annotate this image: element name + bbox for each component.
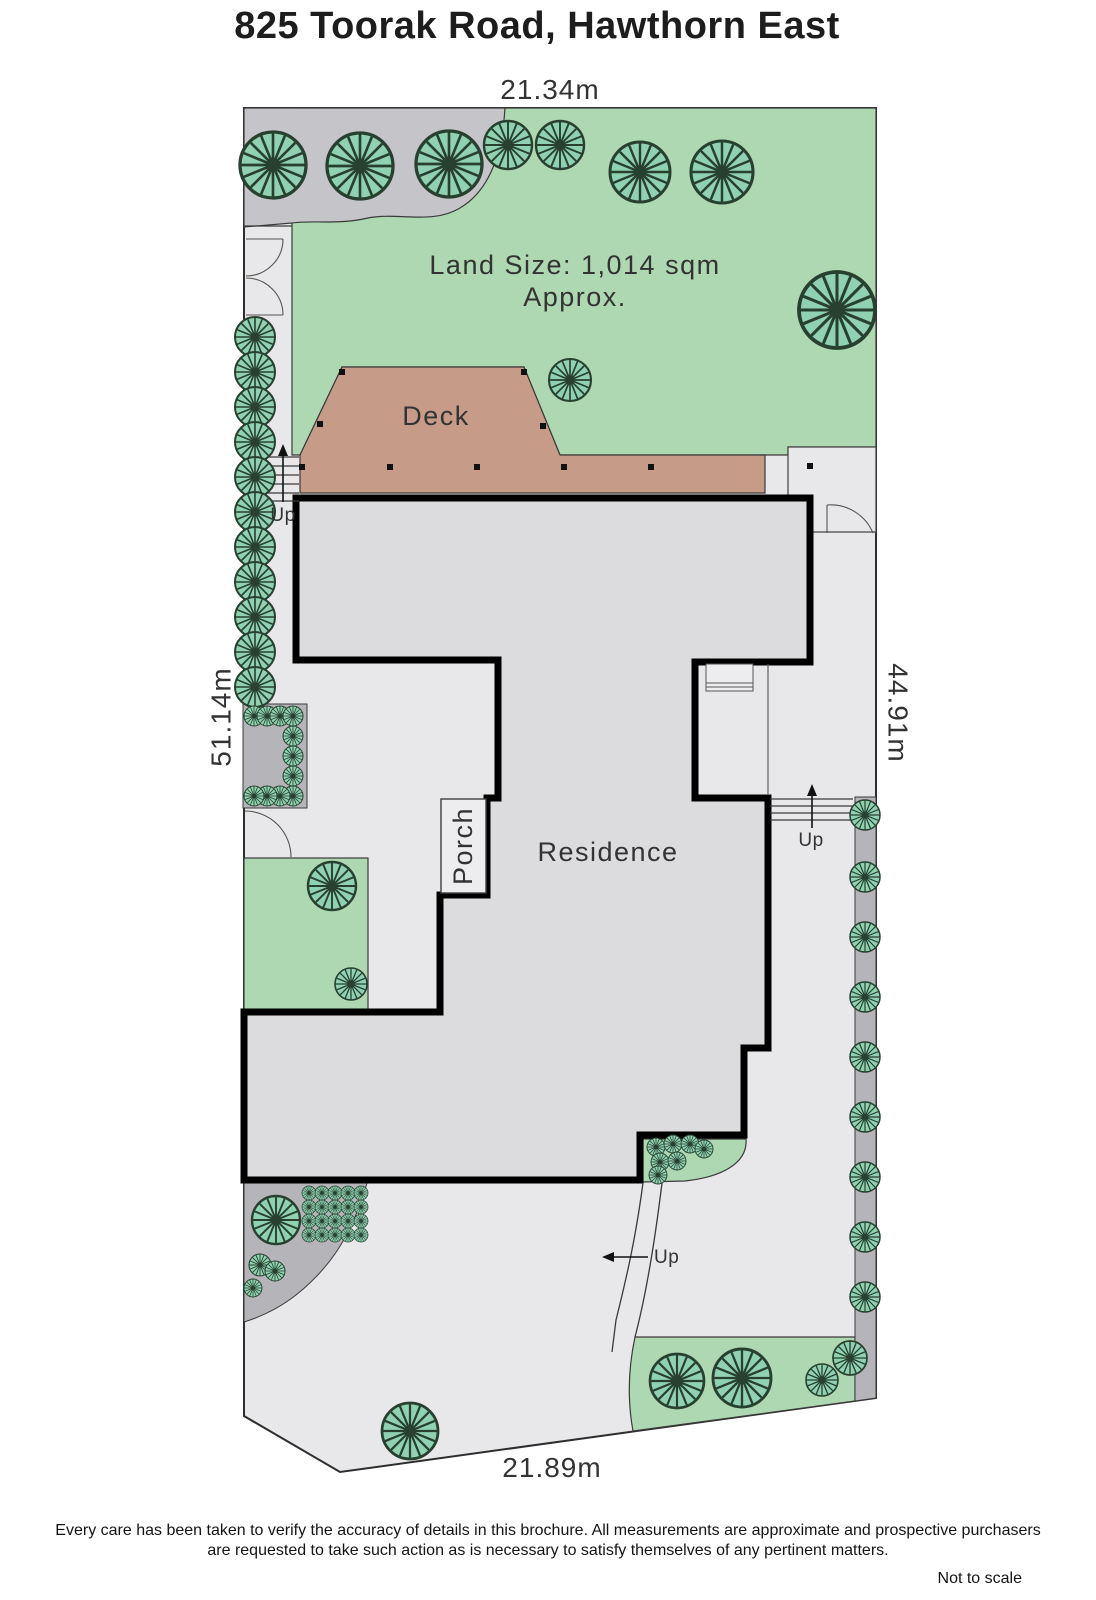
dimension-top: 21.34m [500,74,599,105]
tree-icon [850,1102,880,1132]
tree-icon [382,1403,438,1459]
bush-icon [328,1214,342,1228]
tree-icon [484,121,532,169]
deck-label: Deck [402,401,470,431]
bush-icon [341,1200,355,1214]
tree-icon [799,272,875,348]
bush-icon [283,706,303,726]
tree-icon [416,131,482,197]
bush-icon [283,746,303,766]
bush-icon [315,1200,329,1214]
bush-icon [649,1166,667,1184]
bush-icon [341,1228,355,1242]
dimension-bottom: 21.89m [502,1452,601,1483]
bush-icon [283,766,303,786]
tree-icon [691,141,753,203]
disclaimer-line2: are requested to take such action as is … [207,1542,888,1559]
scale-note: Not to scale [938,1570,1023,1587]
dimension-right: 44.91m [883,663,914,762]
tree-icon [240,132,306,198]
bush-icon [341,1186,355,1200]
up-label-left: Up [270,505,295,526]
bush-icon [302,1186,316,1200]
tree-icon [850,1042,880,1072]
bush-icon [668,1152,686,1170]
land-size-line2: Approx. [523,282,627,312]
dimension-left: 51.14m [206,667,237,766]
tree-icon [549,359,591,401]
bush-icon [354,1200,368,1214]
bush-icon [244,786,264,806]
disclaimer-line1: Every care has been taken to verify the … [55,1522,1040,1539]
bush-icon [244,1279,262,1297]
bush-icon [354,1214,368,1228]
bush-icon [302,1214,316,1228]
bush-icon [354,1228,368,1242]
tree-icon [713,1349,771,1407]
bush-icon [315,1186,329,1200]
tree-icon [850,982,880,1012]
bush-icon [302,1200,316,1214]
up-label-right: Up [798,830,823,851]
tree-icon [850,922,880,952]
tree-icon [650,1354,704,1408]
tree-icon [335,968,367,1000]
site-plan: 825 Toorak Road, Hawthorn East [0,0,1096,1600]
tree-icon [235,667,275,707]
bush-icon [341,1214,355,1228]
bush-icon [315,1228,329,1242]
page-title: 825 Toorak Road, Hawthorn East [234,5,840,47]
tree-icon [327,133,393,199]
porch-label: Porch [448,807,478,885]
bush-icon [695,1140,713,1158]
tree-icon [308,862,356,910]
bush-icon [302,1228,316,1242]
tree-icon [806,1364,838,1396]
bush-icon [283,726,303,746]
bush-icon [328,1186,342,1200]
bush-icon [328,1228,342,1242]
tree-icon [850,800,880,830]
bush-icon [315,1214,329,1228]
bush-icon [354,1186,368,1200]
tree-icon [850,1282,880,1312]
tree-icon [536,121,584,169]
gate-post [807,463,813,469]
bush-icon [328,1200,342,1214]
tree-icon [850,1222,880,1252]
bush-icon [664,1135,682,1153]
tree-icon [610,142,670,202]
residence-label: Residence [537,837,678,867]
tree-icon [850,1162,880,1192]
bush-icon [265,1261,285,1281]
tree-icon [252,1196,300,1244]
up-label-path: Up [654,1247,679,1268]
tree-icon [833,1341,867,1375]
tree-icon [850,862,880,892]
land-size-line1: Land Size: 1,014 sqm [429,250,720,280]
